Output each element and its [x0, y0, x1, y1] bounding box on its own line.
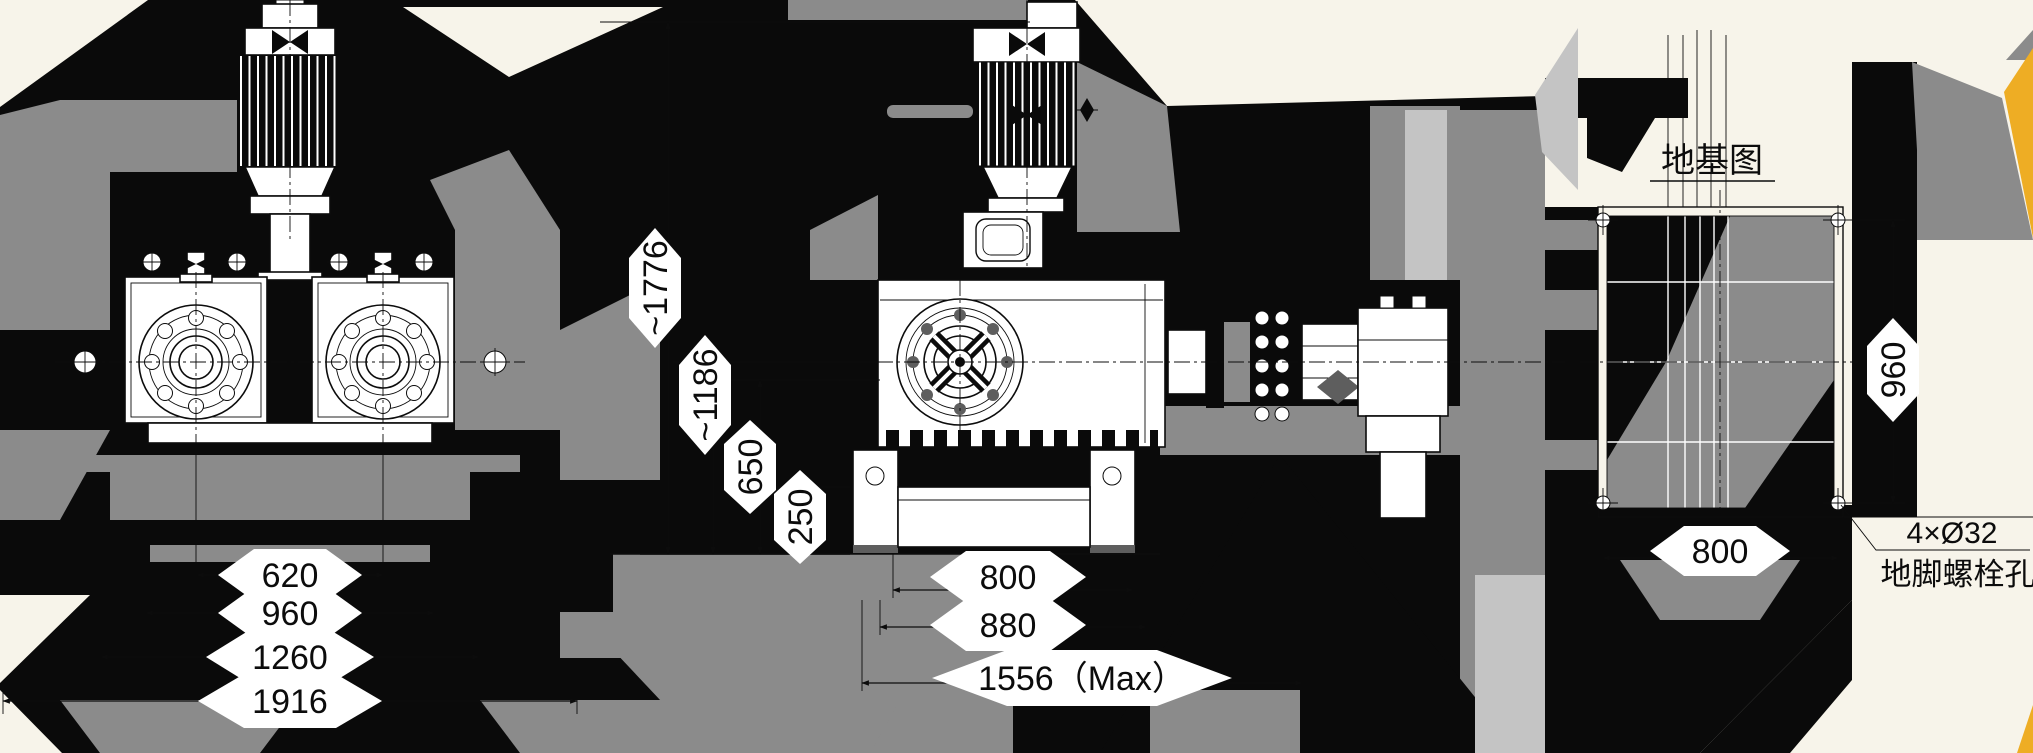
dim-960-foundation-label: 960 — [1875, 342, 1913, 399]
foundation-title: 地基图 — [1661, 142, 1763, 180]
drawing-sheet: 620 960 1260 1916 — [0, 0, 2033, 753]
dim-620-label: 620 — [262, 557, 319, 595]
dim-650-label: 650 — [732, 439, 770, 496]
dim-1260-label: 1260 — [252, 639, 328, 677]
dim-1776-label: ~1776 — [637, 240, 675, 336]
dim-800-label: 800 — [980, 559, 1037, 597]
foundation-slab — [1580, 190, 1858, 535]
engineering-drawing-canvas: 620 960 1260 1916 — [0, 0, 2033, 753]
side-gearbox — [963, 212, 1043, 268]
dim-1556-max-label: 1556（Max） — [978, 660, 1186, 698]
dim-250-label: 250 — [782, 489, 820, 546]
dim-960-label: 960 — [262, 595, 319, 633]
lifting-lug — [887, 105, 973, 118]
bolt-note-spec: 4×Ø32 — [1907, 517, 1998, 550]
dim-800-foundation-label: 800 — [1692, 533, 1749, 571]
dim-1916-label: 1916 — [252, 683, 328, 721]
dim-880-label: 880 — [980, 607, 1037, 645]
front-pedestal — [148, 423, 432, 443]
dim-1186-label: ~1186 — [687, 349, 725, 442]
side-pump-body — [878, 280, 1165, 447]
bolt-note-label: 地脚螺栓孔 — [1881, 557, 2033, 592]
